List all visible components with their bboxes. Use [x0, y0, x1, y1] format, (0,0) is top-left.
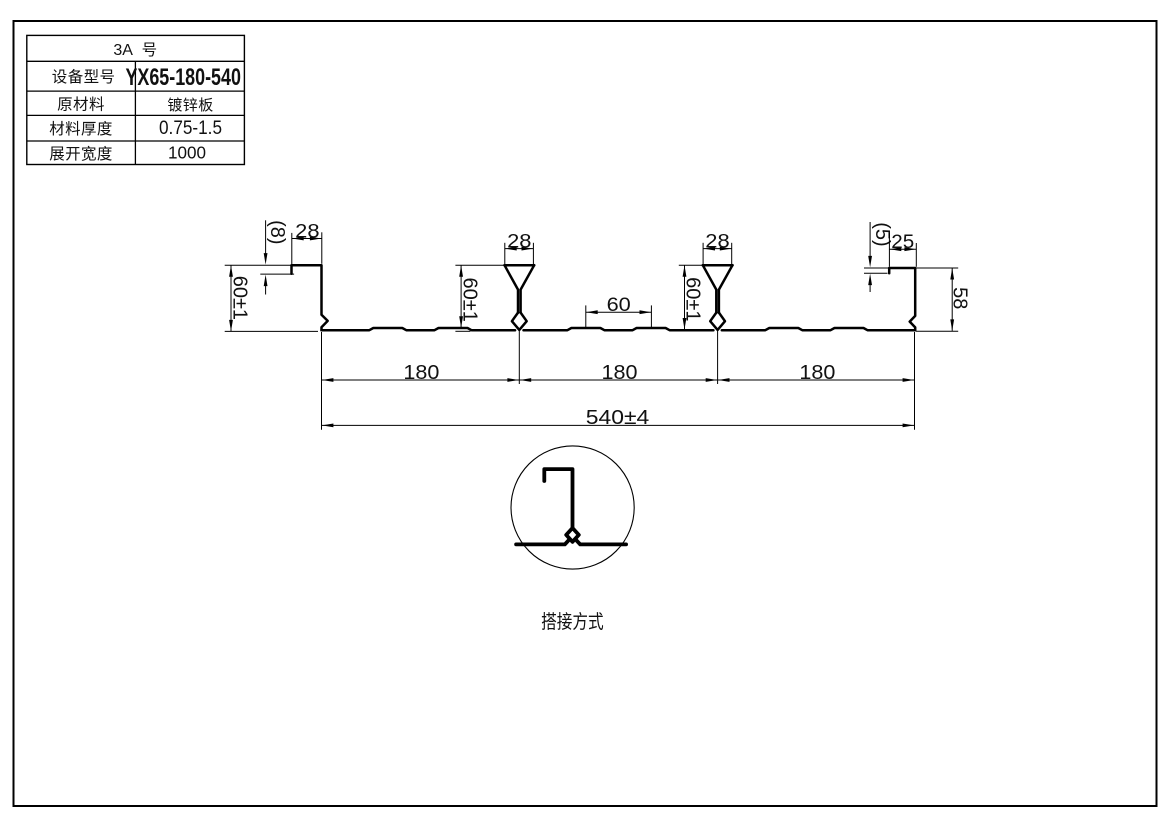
- svg-text:60: 60: [607, 294, 631, 316]
- svg-text:展开宽度: 展开宽度: [49, 145, 113, 163]
- svg-text:25: 25: [891, 231, 914, 253]
- svg-text:58: 58: [949, 287, 971, 309]
- svg-text:60±1: 60±1: [228, 276, 250, 320]
- svg-text:540±4: 540±4: [586, 407, 650, 429]
- svg-text:3A: 3A: [113, 42, 133, 59]
- svg-text:60±1: 60±1: [458, 278, 480, 322]
- svg-text:号: 号: [142, 41, 158, 59]
- svg-text:28: 28: [507, 231, 531, 253]
- svg-text:YX65-180-540: YX65-180-540: [125, 64, 241, 91]
- svg-text:0.75-1.5: 0.75-1.5: [159, 117, 222, 139]
- svg-text:60±1: 60±1: [682, 277, 704, 321]
- svg-text:(8): (8): [266, 220, 288, 244]
- svg-text:180: 180: [403, 362, 439, 384]
- svg-text:28: 28: [705, 231, 729, 253]
- svg-text:28: 28: [295, 220, 319, 242]
- svg-text:1000: 1000: [168, 143, 206, 163]
- svg-text:材料厚度: 材料厚度: [49, 120, 113, 138]
- svg-text:180: 180: [602, 362, 638, 384]
- svg-text:搭接方式: 搭接方式: [541, 611, 604, 633]
- svg-text:原材料: 原材料: [57, 96, 105, 114]
- svg-text:设备型号: 设备型号: [52, 68, 116, 86]
- svg-text:180: 180: [799, 362, 835, 384]
- svg-text:镀锌板: 镀锌板: [167, 96, 213, 114]
